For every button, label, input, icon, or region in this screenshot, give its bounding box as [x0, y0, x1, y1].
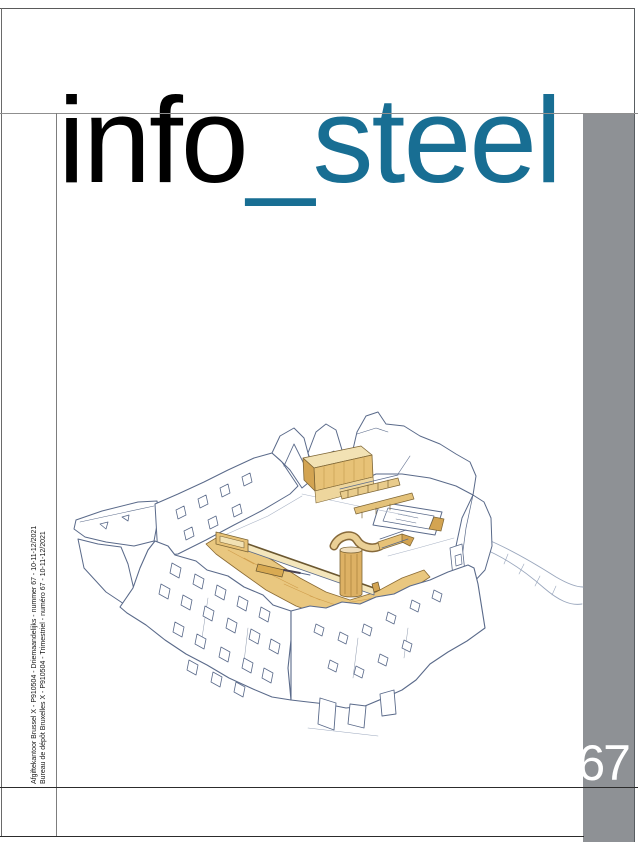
- issue-sidebar: 67: [583, 114, 634, 842]
- issue-number: 67: [577, 738, 629, 788]
- footer-rule-upper: [0, 787, 638, 788]
- imprint-line-fr: Bureau de dépôt Bruxelles X - P910504 - …: [40, 518, 49, 784]
- footer-rule-lower: [0, 836, 584, 837]
- masthead-rule: [0, 113, 638, 114]
- imprint-text: Afgiftekantoor Brussel X - P910504 - Dri…: [31, 518, 48, 784]
- top-rule: [0, 8, 635, 9]
- cover-illustration: [58, 398, 585, 748]
- masthead: info_steel: [58, 79, 560, 201]
- masthead-info: info: [58, 72, 247, 208]
- right-frame-line: [634, 8, 635, 842]
- left-frame-line: [1, 8, 2, 837]
- imprint-line-nl: Afgiftekantoor Brussel X - P910504 - Dri…: [31, 518, 40, 784]
- masthead-steel: _steel: [247, 72, 561, 208]
- left-column-divider: [56, 113, 57, 837]
